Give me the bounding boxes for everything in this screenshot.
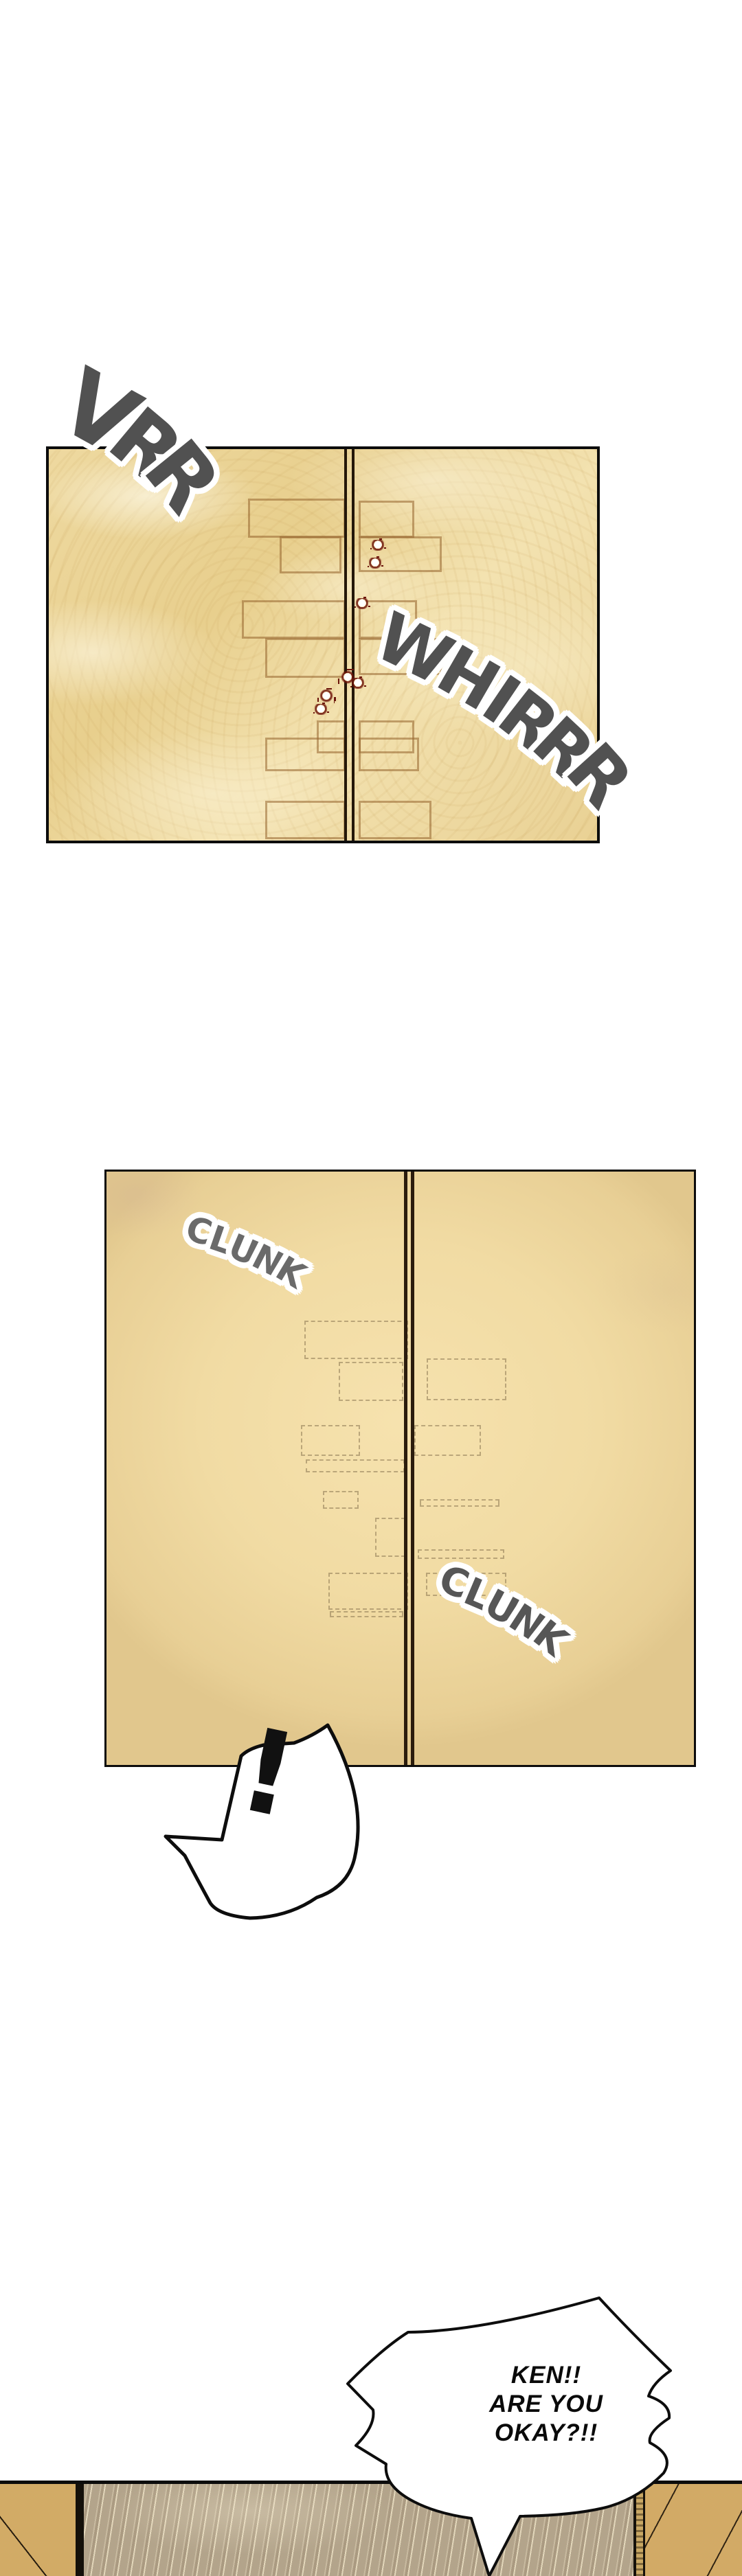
door-molding [359,738,419,771]
speech-line: ARE YOU [440,2390,653,2419]
door-frame-post [76,2484,84,2576]
bullet-hole [319,689,334,703]
door-molding-faint [306,1459,405,1472]
left-wall [0,2484,76,2576]
door-molding-faint [420,1499,499,1507]
door-seam-line [344,449,347,841]
door-molding-faint [375,1518,405,1557]
door-molding [359,801,431,839]
panel-doors-open [46,446,600,843]
speech-text: KEN!! ARE YOU OKAY?!! [440,2361,653,2448]
door-seam-line [404,1172,407,1765]
bullet-hole [315,704,327,715]
door-molding [280,536,341,573]
bullet-hole [356,598,368,609]
door-molding-faint [414,1425,481,1456]
door-molding-faint [339,1362,403,1401]
door-molding [242,600,346,639]
door-molding-faint [418,1549,504,1559]
door-molding-faint [323,1491,359,1509]
bullet-hole [372,540,384,551]
door-seam-line [352,449,355,841]
speech-line: KEN!! [440,2361,653,2390]
door-molding-faint [301,1425,360,1456]
bullet-hole [352,678,364,689]
door-molding [265,738,346,771]
speech-line: OKAY?!! [440,2419,653,2448]
door-molding-faint [427,1358,506,1400]
panel-doors-closed [104,1170,696,1767]
door-molding [359,501,414,538]
door-molding-faint [304,1321,408,1359]
door-molding-faint [328,1573,408,1610]
door-molding [248,499,346,538]
comic-page: ! KEN!! ARE YOU OKAY?!! VRR WHIRRR CLUNK… [0,0,742,2576]
door-molding-faint [330,1611,403,1617]
bullet-hole [369,558,381,569]
door-molding [265,801,346,839]
door-molding [265,638,346,678]
door-seam-line [411,1172,414,1765]
